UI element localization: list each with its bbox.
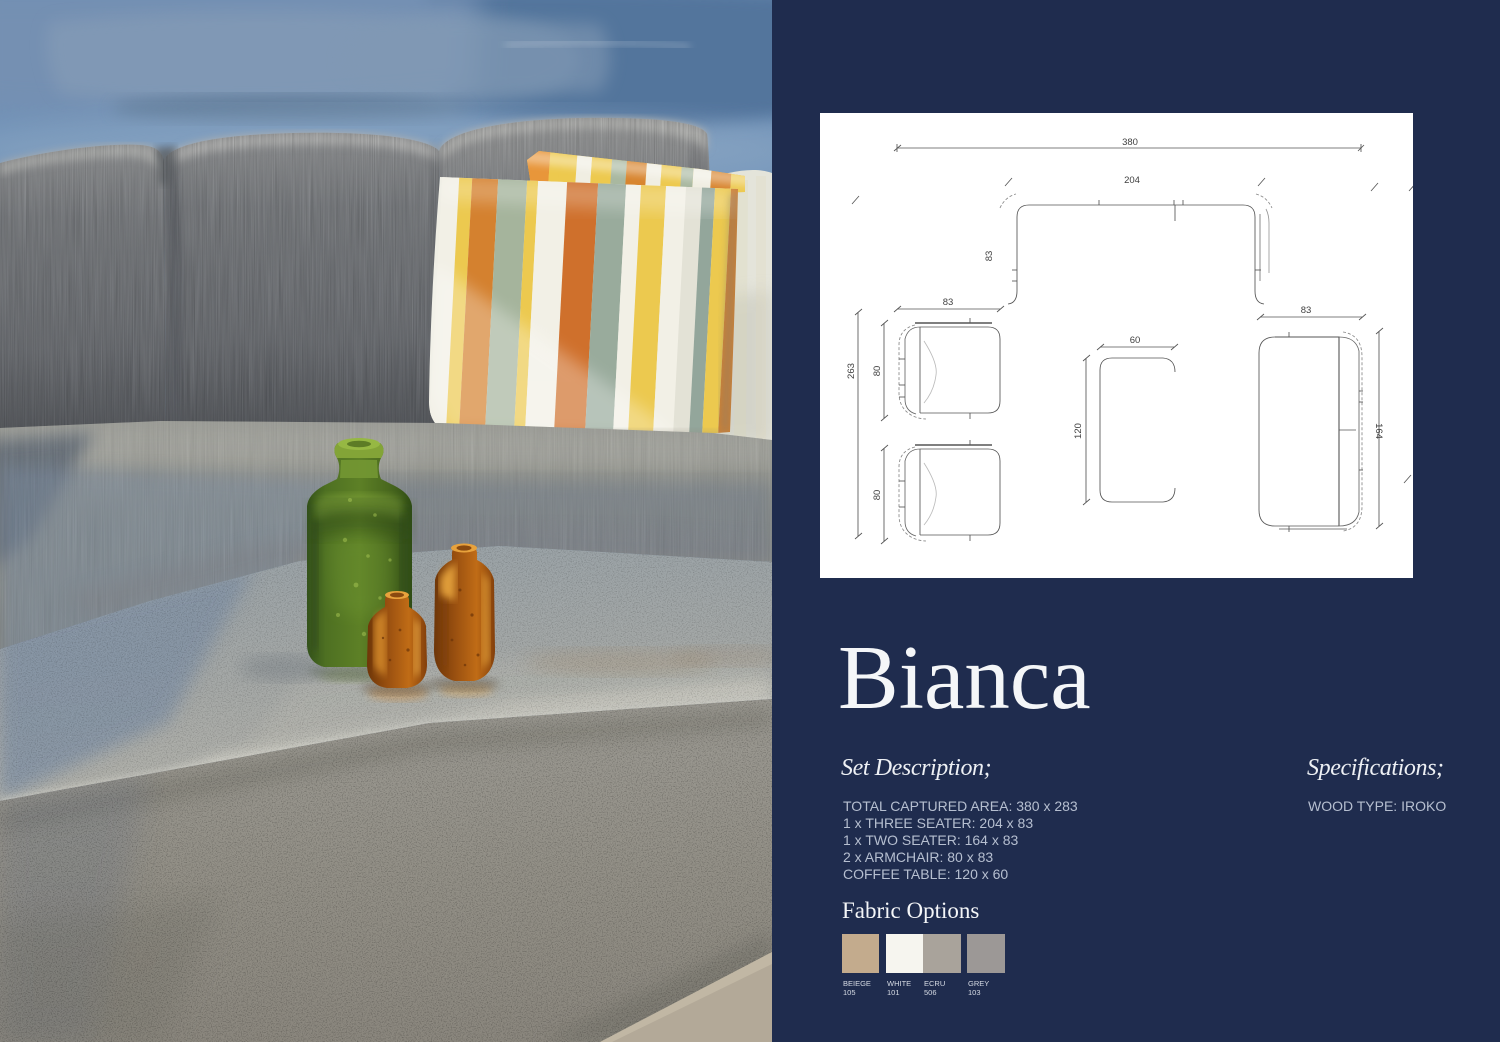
svg-text:164: 164 [1373,423,1384,439]
svg-text:380: 380 [1122,137,1138,148]
svg-text:83: 83 [1301,305,1312,316]
svg-text:83: 83 [943,297,954,308]
svg-text:80: 80 [872,490,883,501]
svg-text:120: 120 [1073,423,1084,439]
svg-text:60: 60 [1130,335,1141,346]
svg-text:204: 204 [1124,175,1140,186]
svg-text:83: 83 [984,251,995,262]
svg-text:263: 263 [846,363,857,379]
svg-text:80: 80 [872,366,883,377]
